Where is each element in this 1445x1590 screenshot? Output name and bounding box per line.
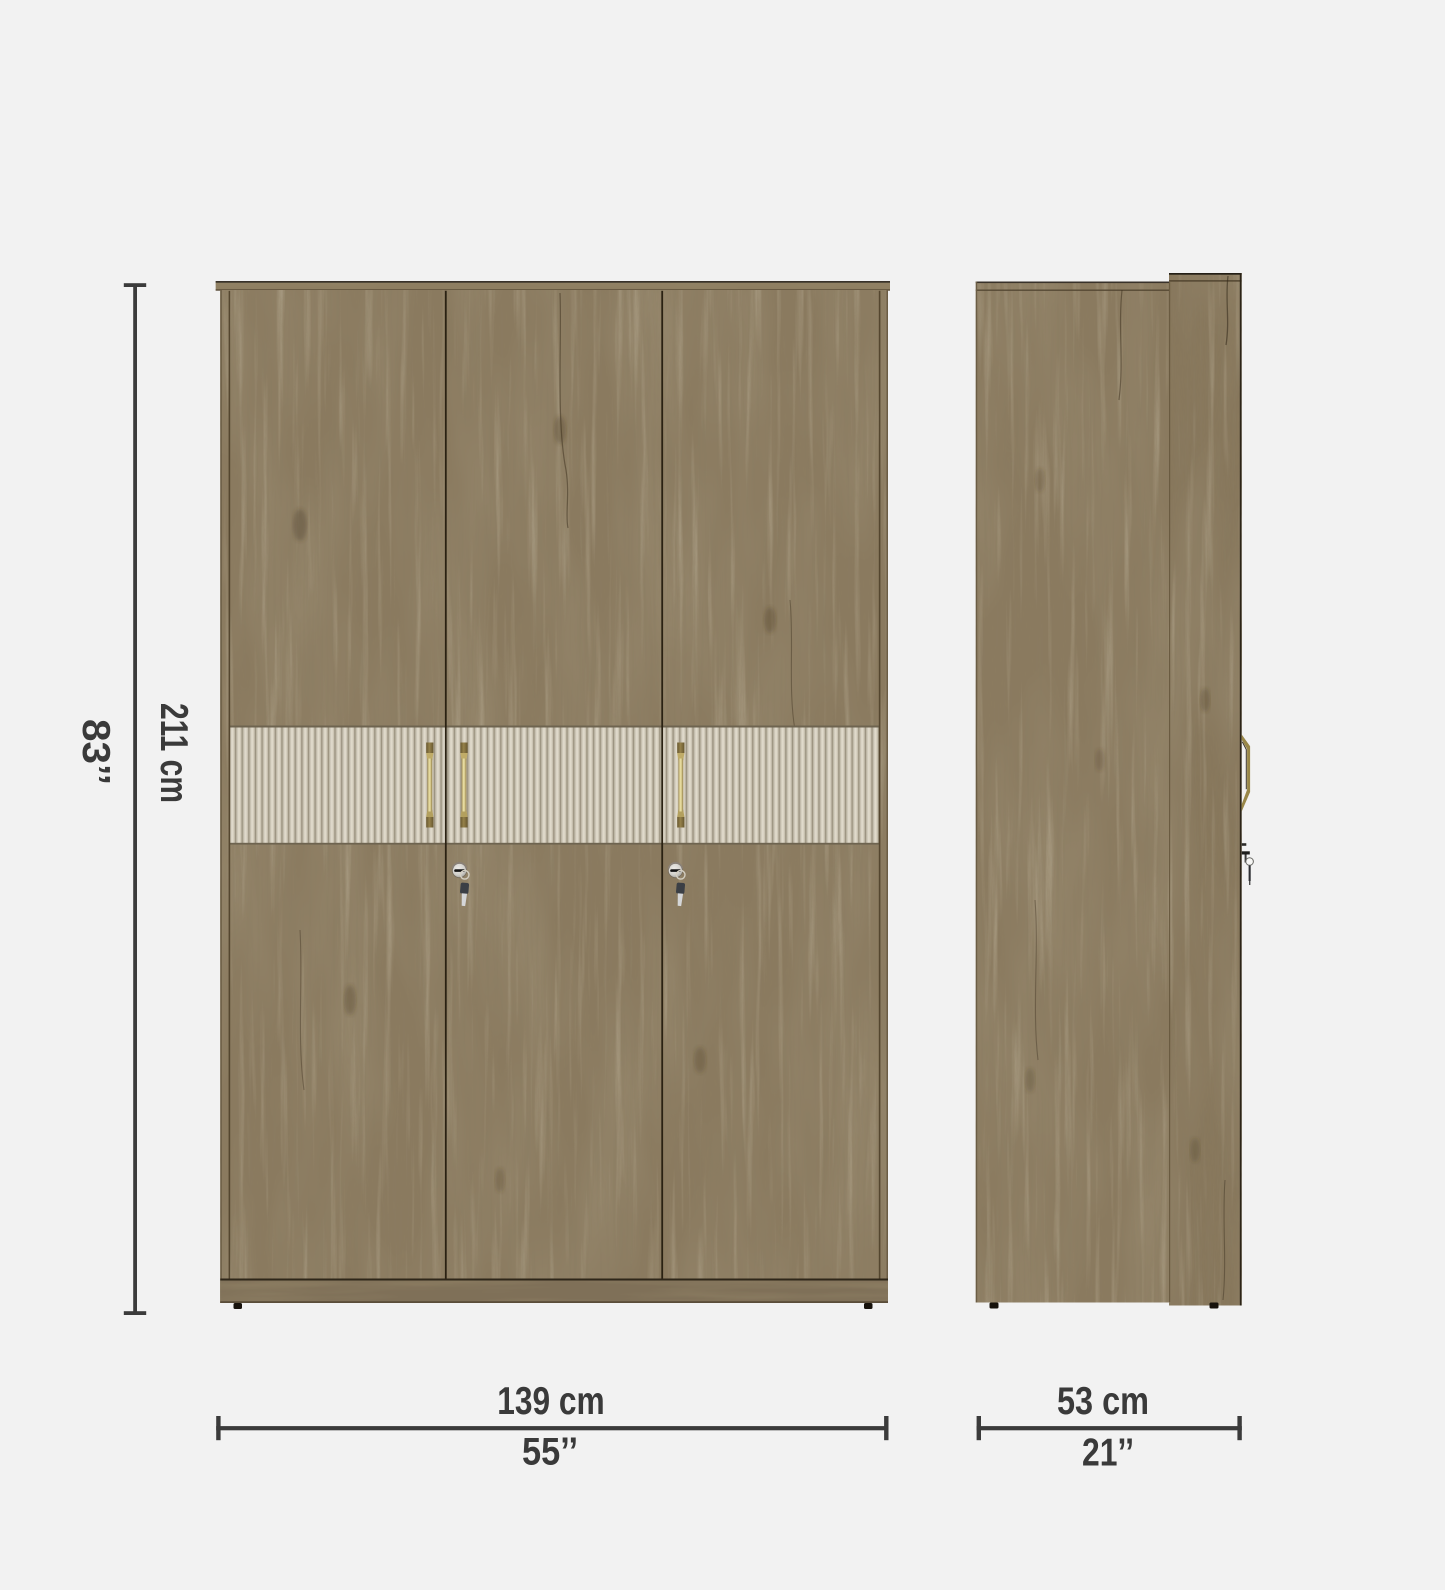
svg-text:21’’: 21’’ (1082, 1432, 1134, 1475)
svg-text:55’’: 55’’ (522, 1431, 578, 1474)
svg-text:139 cm: 139 cm (497, 1380, 605, 1423)
svg-text:53 cm: 53 cm (1057, 1380, 1149, 1423)
svg-text:83’’: 83’’ (74, 719, 117, 785)
svg-text:211 cm: 211 cm (152, 703, 195, 803)
